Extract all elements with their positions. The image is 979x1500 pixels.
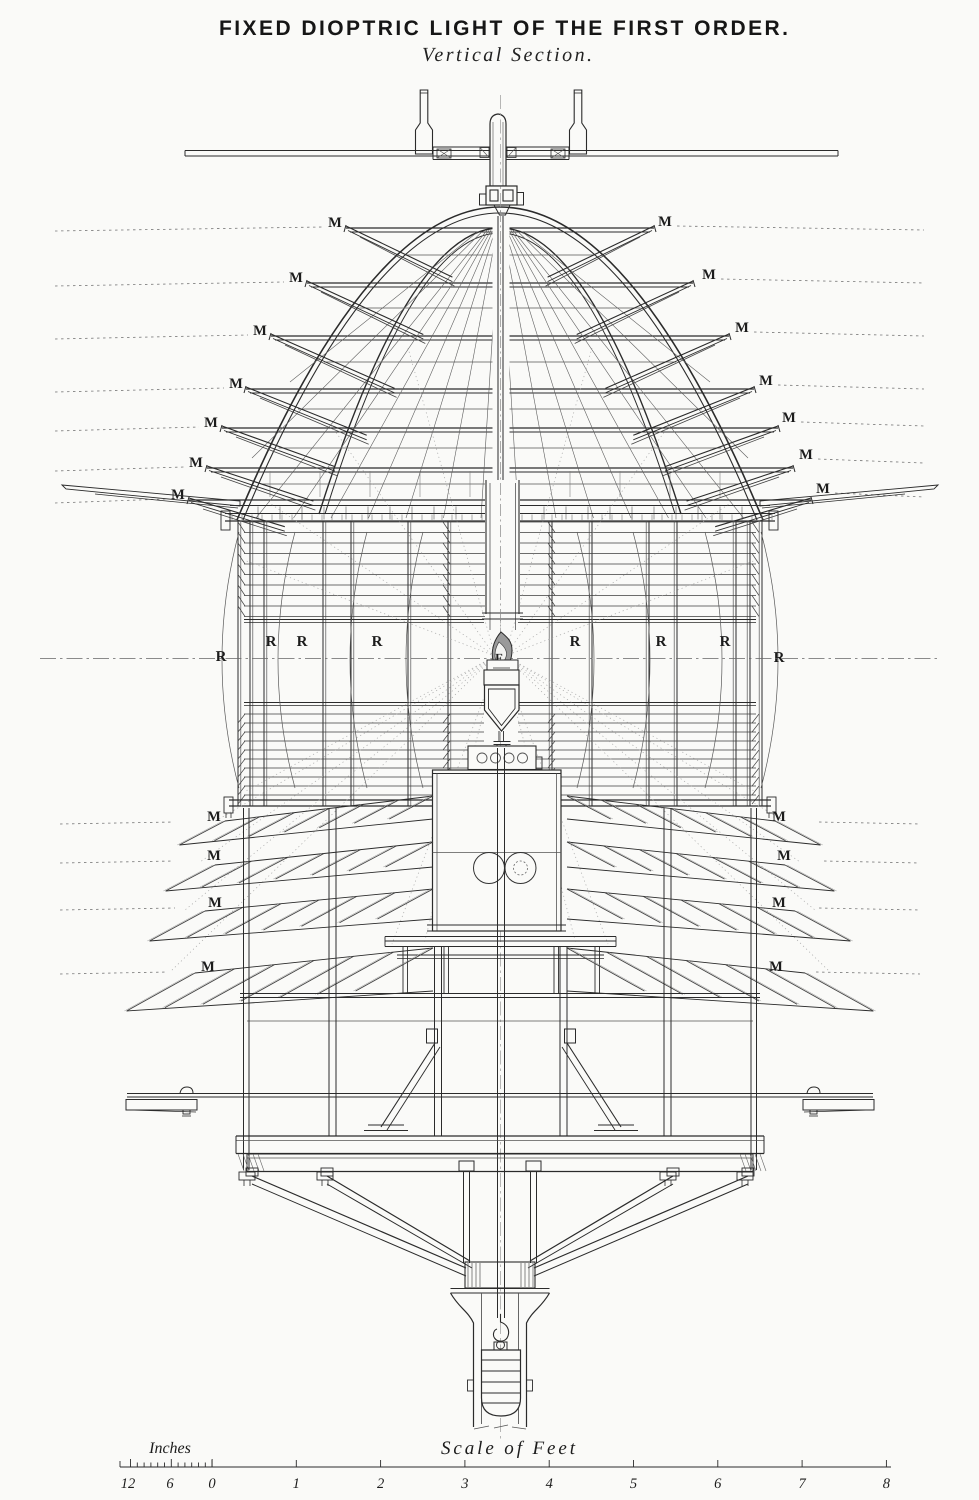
svg-text:M: M	[782, 410, 796, 426]
svg-text:M: M	[769, 959, 783, 975]
svg-text:M: M	[229, 376, 243, 392]
svg-text:R: R	[216, 649, 227, 665]
svg-text:2: 2	[377, 1476, 384, 1492]
svg-text:Vertical Section.: Vertical Section.	[422, 44, 592, 66]
svg-text:6: 6	[166, 1476, 174, 1492]
svg-text:1: 1	[293, 1476, 300, 1492]
svg-text:M: M	[702, 267, 716, 283]
svg-text:Inches: Inches	[148, 1440, 191, 1457]
svg-text:R: R	[570, 634, 581, 650]
svg-text:8: 8	[883, 1476, 891, 1492]
svg-text:7: 7	[798, 1476, 806, 1492]
svg-text:4: 4	[546, 1476, 553, 1492]
svg-text:M: M	[201, 959, 215, 975]
svg-text:M: M	[207, 809, 221, 825]
svg-text:M: M	[772, 809, 786, 825]
svg-text:M: M	[735, 320, 749, 336]
svg-text:6: 6	[714, 1476, 722, 1492]
svg-text:M: M	[289, 270, 303, 286]
svg-text:M: M	[189, 455, 203, 471]
svg-text:5: 5	[630, 1476, 637, 1492]
svg-text:M: M	[777, 848, 791, 864]
svg-text:3: 3	[460, 1476, 468, 1492]
svg-text:M: M	[658, 214, 672, 230]
svg-text:12: 12	[121, 1476, 136, 1492]
svg-text:M: M	[772, 895, 786, 911]
svg-text:M: M	[208, 895, 222, 911]
svg-text:R: R	[656, 634, 667, 650]
svg-text:M: M	[328, 215, 342, 231]
svg-text:R: R	[720, 634, 731, 650]
svg-text:R: R	[774, 650, 785, 666]
svg-text:M: M	[799, 447, 813, 463]
svg-text:M: M	[207, 848, 221, 864]
svg-text:M: M	[204, 415, 218, 431]
svg-text:M: M	[759, 373, 773, 389]
svg-text:R: R	[266, 634, 277, 650]
svg-text:R: R	[372, 634, 383, 650]
svg-text:M: M	[253, 323, 267, 339]
svg-text:R: R	[297, 634, 308, 650]
svg-text:0: 0	[208, 1476, 216, 1492]
